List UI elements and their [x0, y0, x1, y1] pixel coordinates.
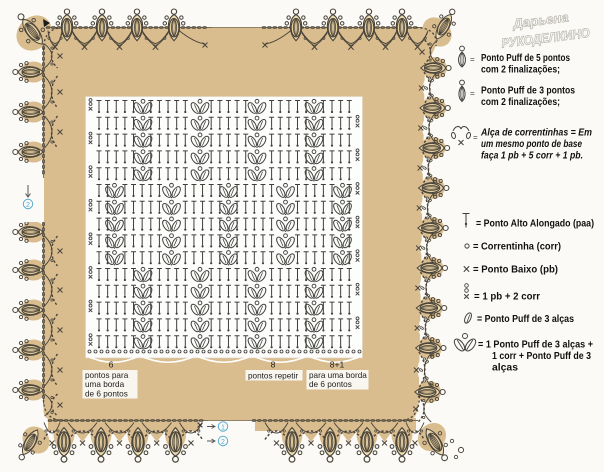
svg-text:de 6 pontos: de 6 pontos — [85, 389, 128, 398]
svg-text:= 1 Ponto Puff de 3 alças +: = 1 Ponto Puff de 3 alças + — [478, 340, 593, 351]
svg-text:= 1 pb + 2 corr: = 1 pb + 2 corr — [474, 292, 540, 303]
svg-text:2: 2 — [26, 202, 30, 209]
svg-text:para uma borda: para uma borda — [309, 371, 367, 380]
svg-text:2: 2 — [221, 439, 225, 446]
svg-text:faça 1 pb + 5 corr + 1 pb.: faça 1 pb + 5 corr + 1 pb. — [481, 151, 583, 162]
svg-text:Alça de correntinhas = Em: Alça de correntinhas = Em — [480, 128, 592, 139]
svg-text:= Correntinha (corr): = Correntinha (corr) — [473, 242, 561, 253]
svg-text:=: = — [473, 133, 478, 142]
svg-text:com 2 finalizações;: com 2 finalizações; — [481, 65, 560, 76]
svg-text:=: = — [470, 55, 475, 64]
svg-text:=: = — [470, 89, 475, 98]
svg-text:pontos repetir: pontos repetir — [248, 371, 298, 380]
svg-text:um mesmo ponto de base: um mesmo ponto de base — [481, 139, 582, 150]
svg-text:= Ponto Puff de 3 alças: = Ponto Puff de 3 alças — [477, 314, 574, 325]
svg-text:= Ponto Baixo (pb): = Ponto Baixo (pb) — [473, 265, 558, 276]
svg-text:de 6 pontos: de 6 pontos — [309, 380, 352, 389]
svg-text:alças: alças — [492, 363, 519, 374]
svg-text:= Ponto Alto Alongado (paa): = Ponto Alto Alongado (paa) — [476, 219, 594, 230]
svg-text:Ponto Puff de 5 pontos: Ponto Puff de 5 pontos — [481, 53, 570, 64]
svg-text:8+1: 8+1 — [330, 360, 345, 370]
svg-text:8: 8 — [271, 360, 276, 370]
svg-text:com 2 finalizações;: com 2 finalizações; — [481, 97, 560, 108]
svg-text:Ponto Puff de 3 pontos: Ponto Puff de 3 pontos — [481, 86, 575, 97]
svg-text:uma borda: uma borda — [85, 380, 125, 389]
svg-text:6: 6 — [109, 360, 114, 370]
svg-text:1 corr + Ponto Puff de 3: 1 corr + Ponto Puff de 3 — [492, 351, 591, 362]
svg-text:1: 1 — [221, 425, 225, 432]
svg-text:pontos para: pontos para — [85, 371, 129, 380]
